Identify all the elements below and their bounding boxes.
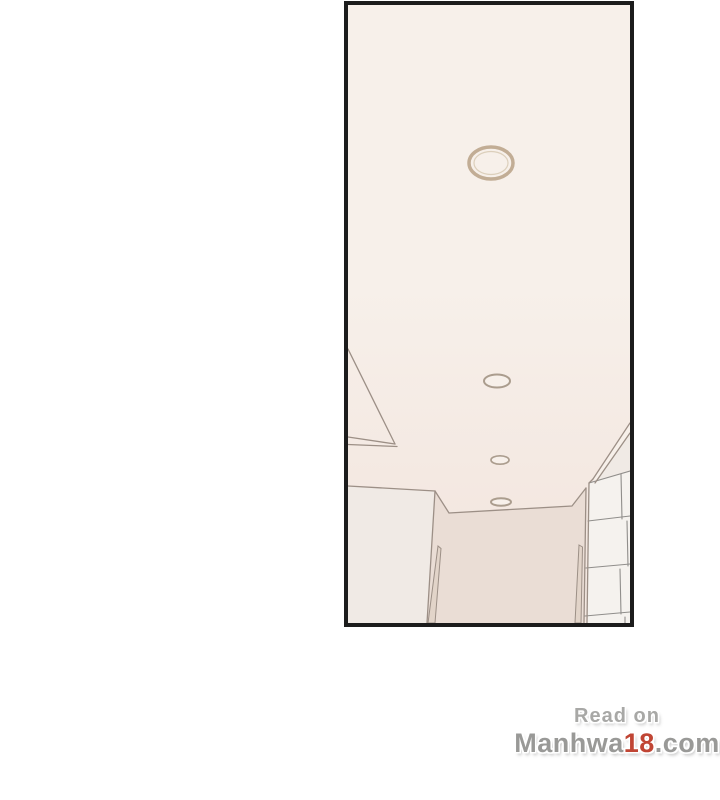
watermark-brand-number: 18	[624, 728, 655, 758]
ceiling-light-4	[491, 498, 511, 506]
left-wedge-line	[348, 437, 395, 444]
left-wedge-line	[348, 445, 397, 447]
ceiling-light-3	[491, 456, 509, 464]
watermark-read-on: Read on	[514, 705, 720, 727]
watermark: Read on Manhwa18.com	[514, 705, 720, 759]
watermark-brand-suffix: .com	[655, 728, 720, 758]
left-wedge-line	[348, 349, 395, 444]
comic-panel	[344, 1, 634, 627]
watermark-brand: Manhwa	[514, 728, 624, 758]
ceiling-light-2	[484, 375, 510, 388]
page: Read on Manhwa18.com	[0, 0, 720, 800]
tiled-wall	[587, 471, 630, 623]
hallway-far-wall	[427, 488, 586, 623]
ceiling-lights	[469, 147, 513, 506]
left-wall	[348, 486, 435, 623]
watermark-site-name: Manhwa18.com	[514, 729, 720, 759]
ceiling-illustration	[348, 5, 630, 623]
